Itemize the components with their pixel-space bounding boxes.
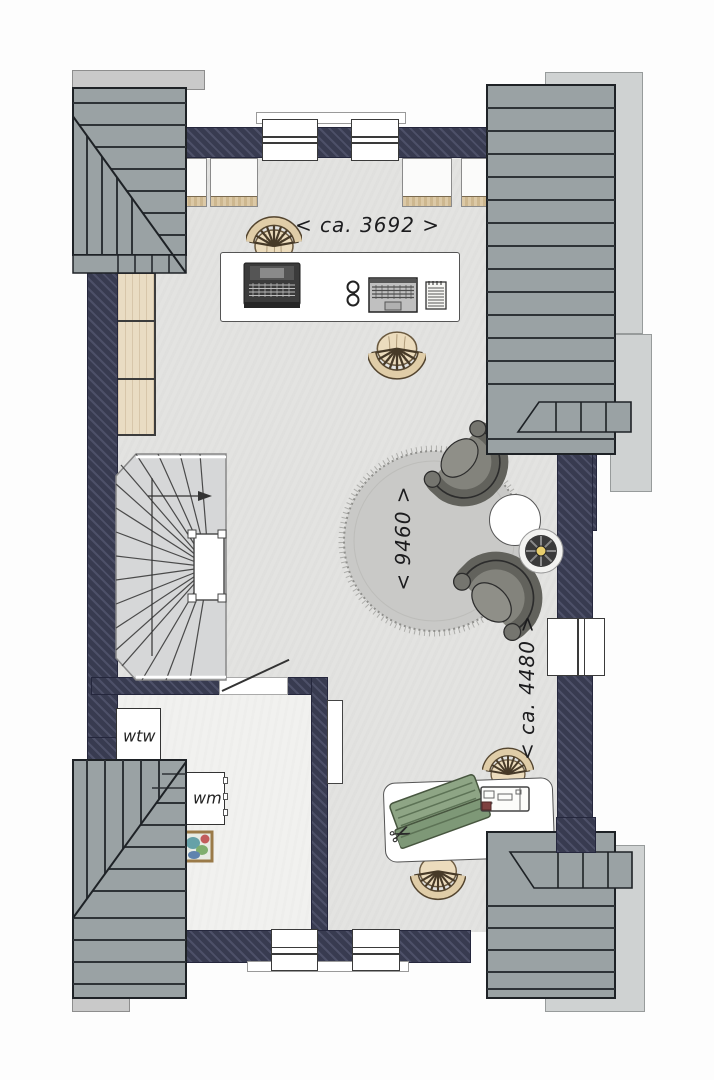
wm-label: wm [193,788,222,807]
radiator [327,700,343,784]
roof-plane-top-right [486,84,636,456]
window-top-1 [262,119,318,161]
wall-bottom-left-segment [180,931,272,962]
cabinet-wood-edge [211,196,257,206]
wall-top-right-segment [398,128,487,157]
window-frame-line [352,142,398,144]
laptop-icon [243,262,301,310]
window-top-2 [351,119,399,161]
wall-top-left-segment [183,128,263,157]
roof-step-detail [518,402,631,432]
window-frame-line [353,953,399,955]
window-frame-line [272,947,317,949]
wardrobe-divider [118,320,154,322]
wall-laundry-vertical [312,678,327,962]
wooden-chair [368,326,426,388]
hinge [223,809,228,816]
wall-bottom-pier [317,931,353,962]
washing-machine: wm [186,772,225,825]
heat-recovery-unit: wtw [116,708,161,765]
hinge [223,777,228,784]
window-frame-line [263,142,317,144]
roof-plane-top-left [72,87,188,275]
notepad-icon [425,280,447,310]
window-frame-line [352,136,398,138]
window-frame-line [272,953,317,955]
winder-staircase [112,450,232,684]
wall-top-pier [317,128,353,157]
window-frame-line [353,947,399,949]
dimension-right: < ca. 4480 > [515,620,539,760]
window-bottom-2 [352,929,400,971]
sewing-machine-icon [480,786,530,812]
window-right [547,618,605,676]
cabinet-wood-edge [185,196,206,206]
window-bottom-1 [271,929,318,971]
knee-wall-cabinet-2 [210,158,258,207]
roof-plane-bottom-left [72,758,188,1000]
wtw-label: wtw [123,726,155,745]
laptop-open-icon [368,277,418,313]
fan-icon [518,528,564,574]
window-frame-line [263,136,317,138]
wardrobe-divider [118,378,154,380]
window-frame-line [584,619,586,675]
cabinet-wood-edge [403,196,451,206]
wall-right-lower-stub [557,818,595,852]
hinge [223,793,228,800]
dimension-top: < ca. 3692 > [280,213,455,237]
floor-plan: ✂ wtw wm [0,0,714,1080]
knee-wall-cabinet-4 [461,158,487,207]
window-frame-line [577,619,579,675]
cabinet-wood-edge [462,196,486,206]
wall-bottom-right-segment [399,931,470,962]
dimension-rug: < 9460 > [391,468,415,608]
wardrobe [116,272,156,436]
knee-wall-cabinet-3 [402,158,452,207]
glasses-icon [345,280,367,308]
